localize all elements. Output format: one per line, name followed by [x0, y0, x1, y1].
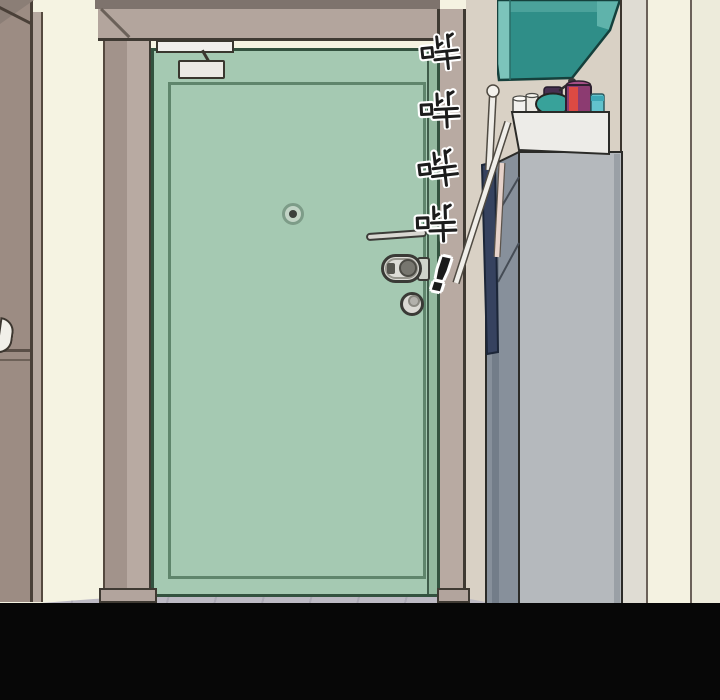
left-door-edge: [33, 12, 43, 602]
overhead-cabinet: [497, 0, 620, 82]
left-door-panel-line: [0, 359, 30, 361]
door-frame-left-inner: [127, 8, 151, 603]
door-frame-top-shadow: [95, 0, 440, 9]
frame-plinth-left: [99, 588, 157, 603]
door-frame-top: [98, 9, 440, 41]
door-inner-panel: [168, 82, 426, 579]
webtoon-panel: 哔 哔 哔 哔 !: [0, 0, 720, 700]
pink-stick: [497, 163, 502, 257]
shoe-cabinet-front: [519, 152, 622, 605]
peephole-lens: [289, 210, 297, 218]
digital-lock-dial: [399, 259, 417, 277]
shoe-cabinet-top-board: [512, 112, 609, 154]
door-closer-rail: [156, 40, 234, 53]
wall-corner-strip: [692, 0, 720, 605]
digital-lock-keyhole: [387, 263, 395, 274]
shoe-cabinet-edge-shade: [614, 154, 620, 603]
deadbolt-knob-turn: [408, 295, 420, 307]
magenta-bottle: [566, 81, 591, 114]
door-closer-body: [178, 60, 225, 79]
left-room-door: [0, 0, 33, 602]
door-frame-left-outer: [103, 0, 127, 603]
wall-corner-strip: [648, 0, 692, 605]
shoe-cabinet: [450, 75, 625, 605]
entry-door-edge-strip: [427, 51, 437, 594]
letterbox-bottom: [0, 603, 720, 700]
